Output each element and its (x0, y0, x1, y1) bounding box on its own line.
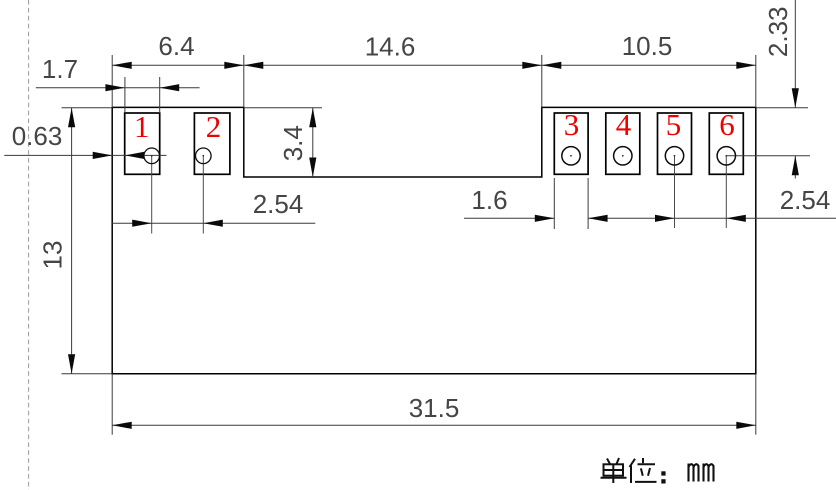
svg-text:6.4: 6.4 (158, 31, 194, 61)
svg-text:13: 13 (38, 241, 68, 270)
svg-text:5: 5 (666, 107, 682, 142)
svg-text:1.7: 1.7 (42, 54, 78, 84)
svg-text:1: 1 (134, 109, 150, 144)
svg-text:3.4: 3.4 (278, 125, 308, 161)
svg-text:14.6: 14.6 (365, 32, 416, 62)
svg-text:31.5: 31.5 (409, 393, 460, 423)
svg-text:10.5: 10.5 (622, 31, 673, 61)
svg-text:1.6: 1.6 (471, 185, 507, 215)
svg-text:2.54: 2.54 (253, 189, 304, 219)
svg-text:4: 4 (616, 107, 632, 142)
svg-text:6: 6 (719, 107, 735, 142)
svg-text:3: 3 (564, 107, 580, 142)
svg-text:2.33: 2.33 (763, 6, 793, 57)
svg-text:2: 2 (206, 109, 222, 144)
svg-text:0.63: 0.63 (12, 121, 63, 151)
svg-text:2.54: 2.54 (780, 185, 831, 215)
